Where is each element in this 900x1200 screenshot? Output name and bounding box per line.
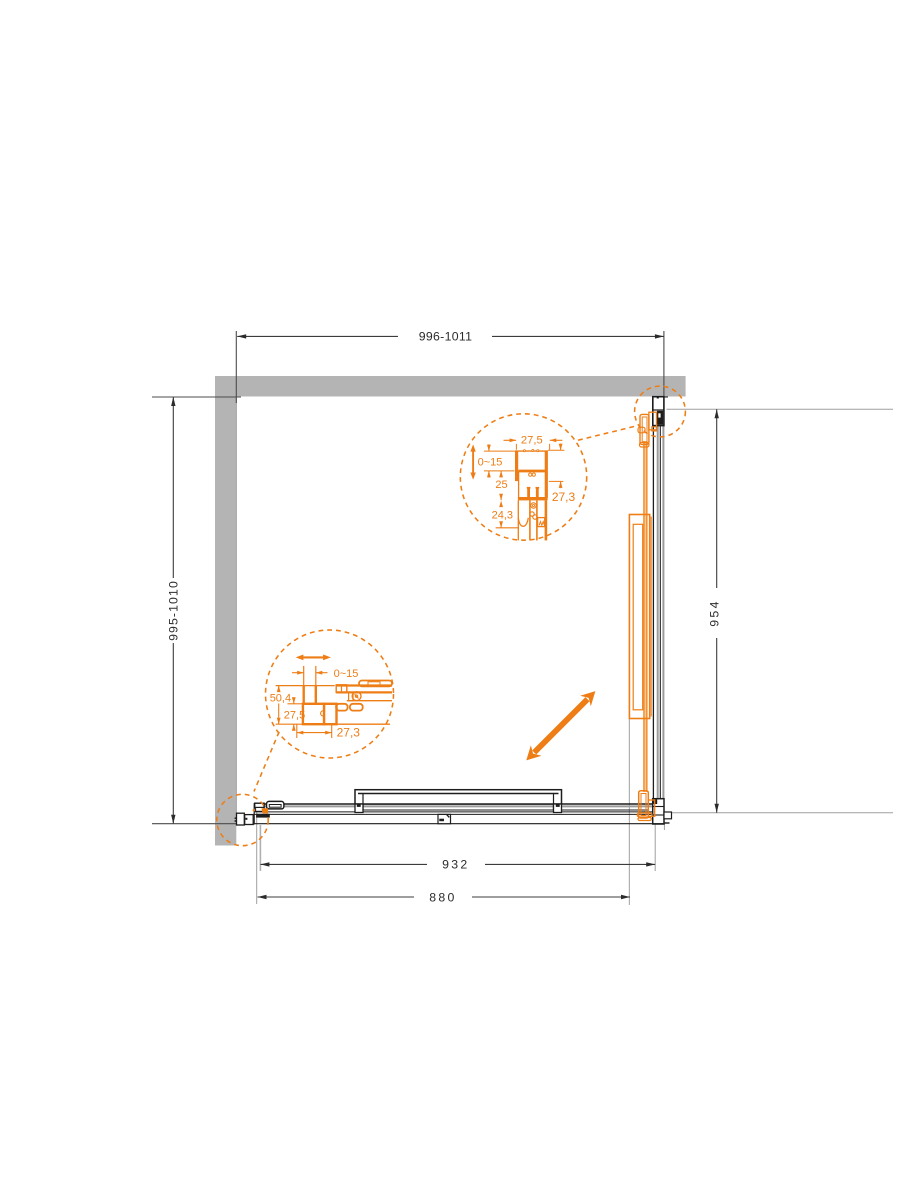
svg-text:0~15: 0~15 xyxy=(334,668,359,680)
svg-text:27,3: 27,3 xyxy=(337,725,361,739)
svg-text:27,5: 27,5 xyxy=(521,434,543,446)
svg-text:996-1011: 996-1011 xyxy=(419,330,472,344)
svg-text:27,3: 27,3 xyxy=(552,490,576,504)
svg-text:50,4: 50,4 xyxy=(270,693,291,705)
svg-text:932: 932 xyxy=(442,858,469,872)
svg-text:27,5: 27,5 xyxy=(284,710,305,722)
svg-text:954: 954 xyxy=(707,599,721,626)
svg-text:24,3: 24,3 xyxy=(492,509,513,521)
svg-text:880: 880 xyxy=(429,890,456,904)
svg-text:995-1010: 995-1010 xyxy=(166,580,180,641)
svg-text:25: 25 xyxy=(495,479,507,491)
svg-text:0~15: 0~15 xyxy=(478,457,503,469)
